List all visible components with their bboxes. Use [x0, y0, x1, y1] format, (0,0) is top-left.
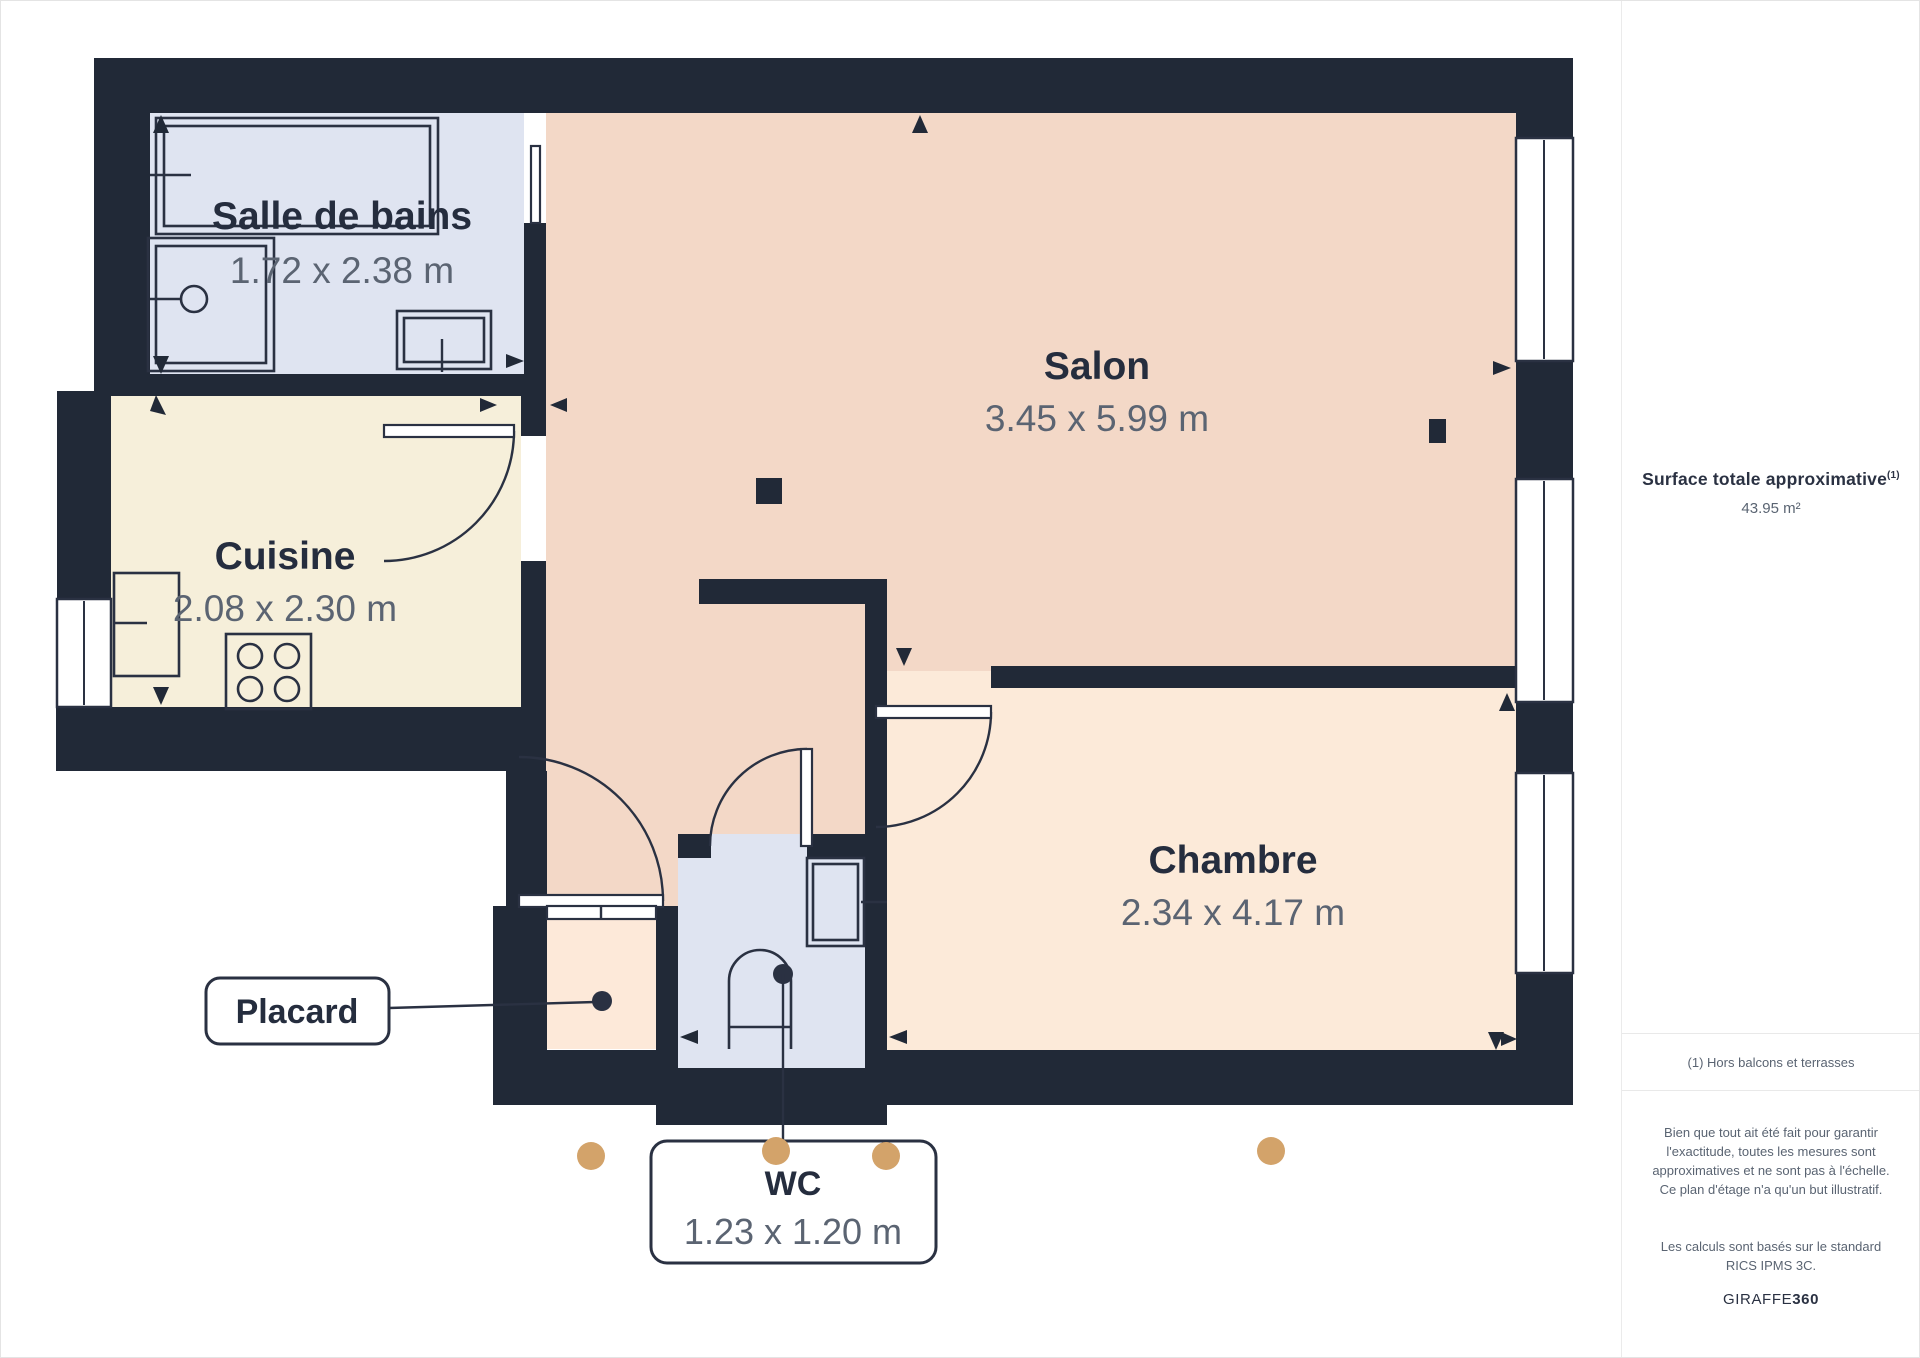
wall-bedroom-top	[991, 666, 1573, 688]
wall-bottom-bedroom	[887, 1050, 1573, 1105]
info-sidebar: Surface totale approximative(1) 43.95 m²…	[1621, 1, 1920, 1358]
camera-dot	[1257, 1137, 1285, 1165]
brand-logo: GIRAFFE360	[1622, 1291, 1920, 1308]
room-dims-salon: 3.45 x 5.99 m	[985, 398, 1209, 439]
window-salon-2	[1516, 479, 1573, 702]
room-label-cuisine: Cuisine	[215, 535, 356, 578]
wall-bathroom-right	[524, 223, 546, 374]
wall-left-bathroom	[94, 58, 150, 396]
wall-mid-vertical	[865, 579, 887, 1105]
camera-dot	[762, 1137, 790, 1165]
wc-callout-dims: 1.23 x 1.20 m	[684, 1211, 902, 1252]
wall-kitchen-right-upper	[521, 396, 546, 436]
wall-wc-top-left	[678, 834, 711, 858]
wc-callout-label: WC	[765, 1165, 822, 1203]
room-label-chambre: Chambre	[1148, 839, 1317, 882]
brand-name: GIRAFFE	[1723, 1291, 1792, 1308]
surface-title-text: Surface totale approximative	[1642, 469, 1887, 489]
wall-kitchen-right-lower	[521, 561, 546, 771]
wall-closet-right	[656, 906, 678, 1069]
wall-bath-kitchen-divider	[94, 374, 546, 396]
door-closet-sliding	[547, 906, 656, 919]
window-salon-1	[1516, 138, 1573, 361]
room-label-salon: Salon	[1044, 345, 1150, 388]
brand-360: 360	[1792, 1291, 1819, 1308]
wall-marker	[1429, 419, 1446, 443]
standard-text: Les calculs sont basés sur le standard R…	[1622, 1237, 1920, 1275]
room-label-salle-de-bains: Salle de bains	[212, 195, 472, 238]
wall-bottom-left	[493, 1050, 678, 1105]
room-dims-salle-de-bains: 1.72 x 2.38 m	[230, 250, 454, 291]
floor-plan-page: Salle de bains 1.72 x 2.38 m Cuisine 2.0…	[0, 0, 1920, 1358]
wall-salon-stub	[699, 579, 887, 604]
surface-title-footnote-ref: (1)	[1887, 470, 1900, 481]
window-kitchen	[57, 599, 111, 707]
leader-dot	[592, 991, 612, 1011]
wall-hall-left	[506, 771, 547, 906]
room-dims-chambre: 2.34 x 4.17 m	[1121, 892, 1345, 933]
footnote: (1) Hors balcons et terrasses	[1622, 1033, 1920, 1091]
column-marker	[756, 478, 782, 504]
closet-floor	[547, 901, 656, 1049]
wall-kitchen-bottom	[56, 707, 546, 771]
disclaimer-text: Bien que tout ait été fait pour garantir…	[1622, 1123, 1920, 1199]
floor-plan-area: Salle de bains 1.72 x 2.38 m Cuisine 2.0…	[1, 1, 1621, 1358]
floor-plan-svg: Salle de bains 1.72 x 2.38 m Cuisine 2.0…	[1, 1, 1621, 1358]
surface-total-value: 43.95 m²	[1622, 500, 1920, 517]
wall-top	[94, 58, 1573, 113]
wall-bottom-wc	[656, 1068, 887, 1125]
room-dims-cuisine: 2.08 x 2.30 m	[173, 588, 397, 629]
closet-callout-label: Placard	[236, 993, 359, 1031]
surface-total-title: Surface totale approximative(1)	[1622, 469, 1920, 490]
camera-dot	[872, 1142, 900, 1170]
window-bedroom	[1516, 773, 1573, 973]
camera-dot	[577, 1142, 605, 1170]
door-bathroom	[524, 113, 546, 223]
surface-total-block: Surface totale approximative(1) 43.95 m²	[1622, 469, 1920, 517]
